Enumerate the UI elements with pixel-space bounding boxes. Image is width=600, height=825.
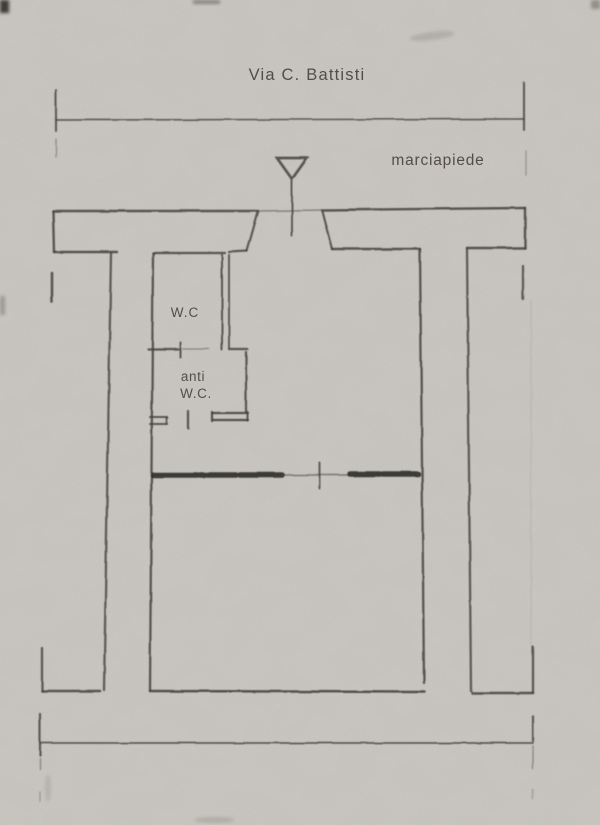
corner-smudge-top-right [591,0,600,9]
entrance-threshold-line [258,210,322,211]
top-edge-smudge [193,0,220,4]
anti-wc-room-label-line2: W.C. [180,386,212,401]
street-label: Via C. Battisti [249,66,366,84]
left-edge-smudge [0,296,5,315]
bottom-edge-smudge [194,817,234,823]
floor-plan-drawing: Via C. Battisti marciapiede W.C anti W.C… [0,0,600,825]
corner-smudge-top-left [0,0,9,13]
wc-room-label: W.C [171,305,200,320]
sidewalk-label: marciapiede [391,152,484,169]
bottom-left-smudge [45,774,51,802]
paper-texture [0,0,600,825]
scanned-floor-plan-page: Via C. Battisti marciapiede W.C anti W.C… [0,0,600,825]
anti-wc-room-label-line1: anti [181,369,205,384]
